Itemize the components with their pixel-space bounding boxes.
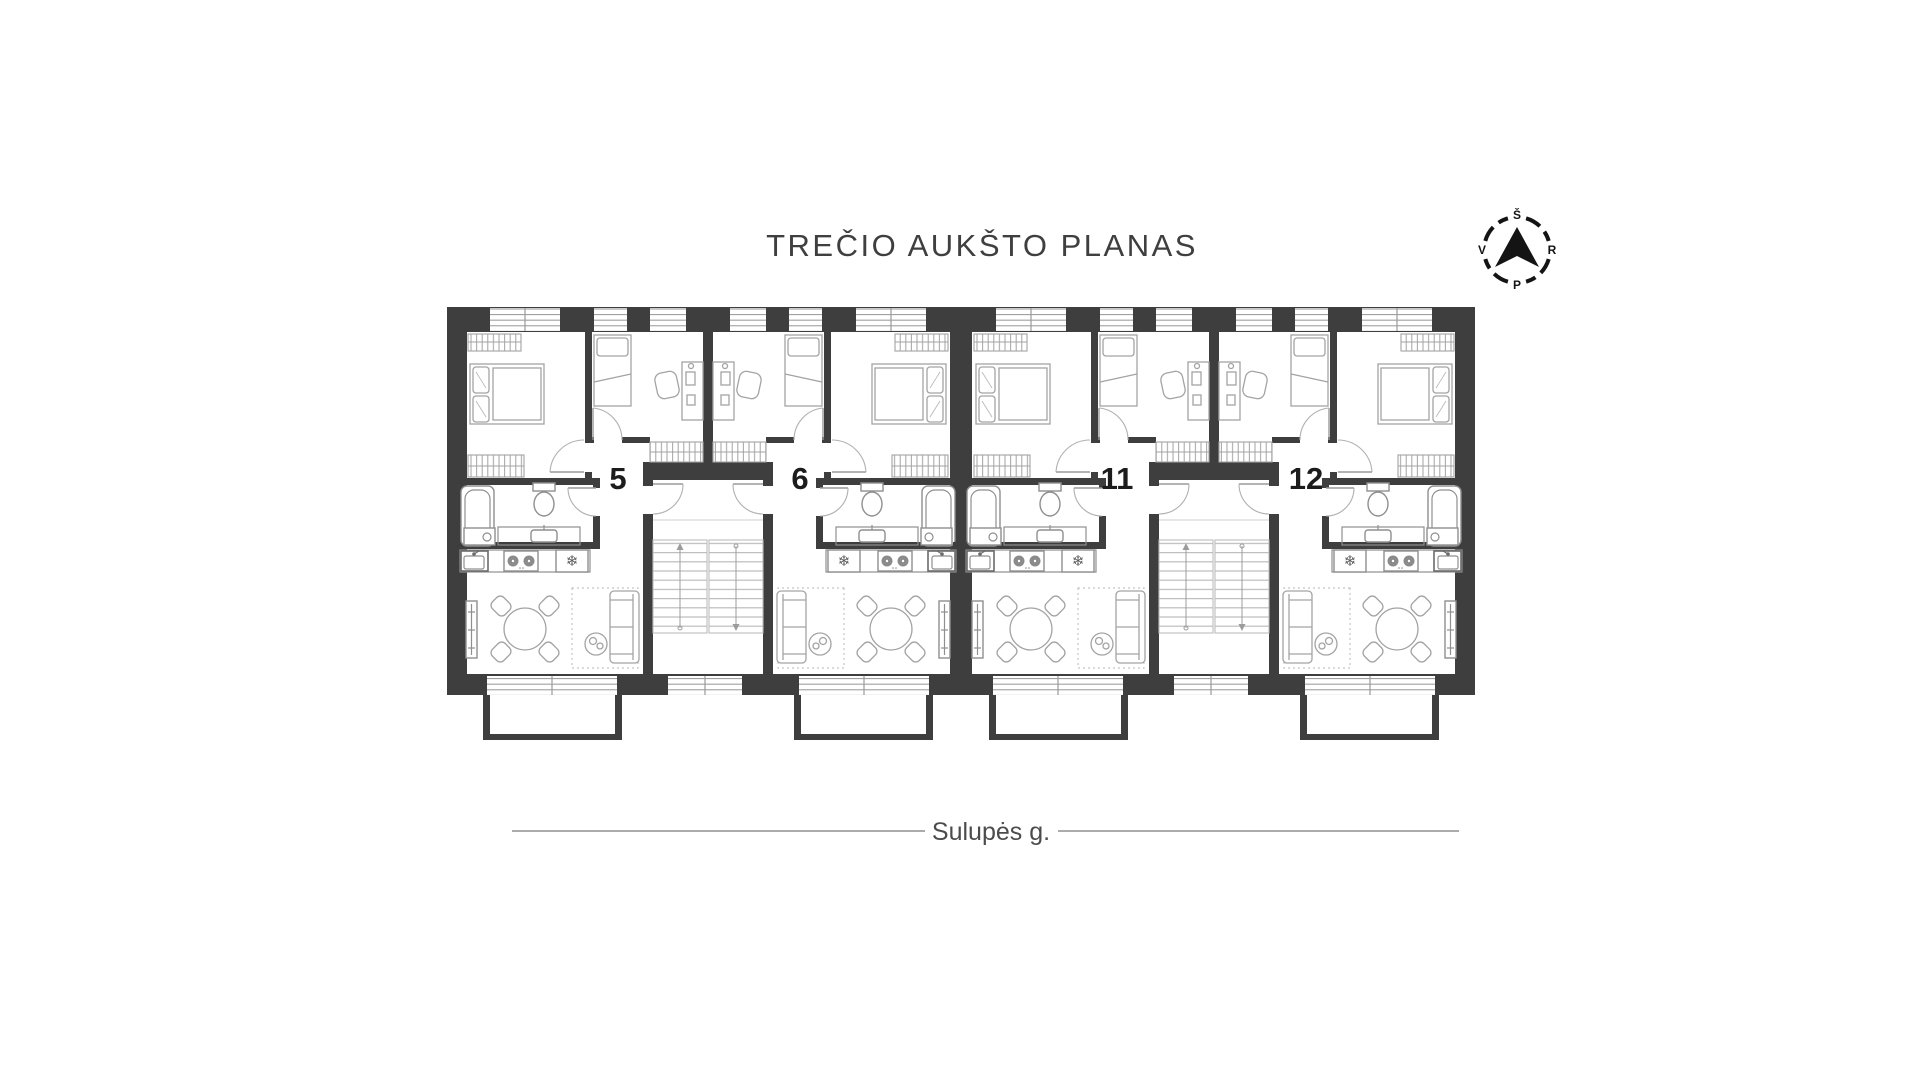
compass-north-letter: Š [1513,207,1521,222]
north-arrow-icon [1495,227,1539,267]
compass-west-letter: V [1478,243,1486,257]
stairwell-right [1159,520,1269,695]
floor-plan-page: ❄ [0,0,1920,1080]
street-label: Sulupės g. [932,818,1050,846]
apartment-number-11: 11 [1101,461,1134,496]
stairwell-left [653,520,763,695]
floor-plan: ❄ [0,0,1920,1080]
apartment-number-6: 6 [791,461,808,496]
apartment-number-5: 5 [609,461,626,496]
page-title: TREČIO AUKŠTO PLANAS [766,228,1198,263]
compass-east-letter: R [1548,243,1557,257]
compass-south-letter: P [1513,278,1521,292]
apartment-number-12: 12 [1289,461,1323,496]
compass: Š R P V [1478,207,1557,292]
street-label-group: Sulupės g. [512,818,1459,846]
